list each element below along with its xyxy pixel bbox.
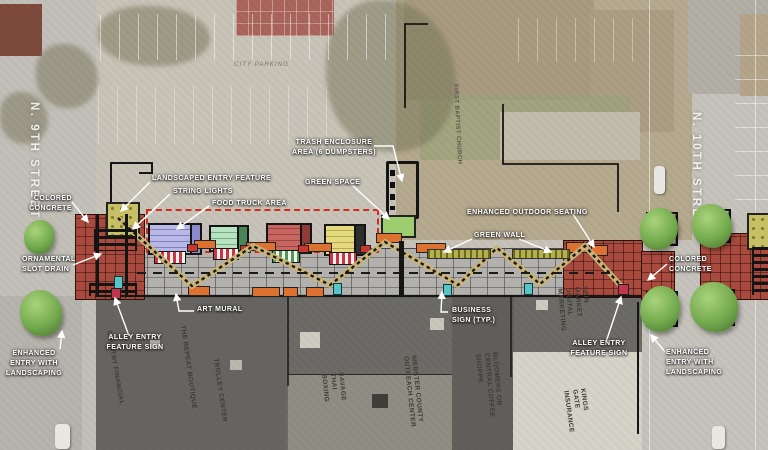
- callout-enhanced-entry-left: ENHANCED ENTRY WITH LANDSCAPING: [2, 349, 66, 378]
- car: [55, 424, 70, 449]
- green-wall-strip: [427, 249, 491, 259]
- business-sign: [524, 283, 533, 295]
- alley-entry-feature-sign-east: [618, 284, 629, 295]
- callout-string-lights: STRING LIGHTS: [173, 187, 233, 197]
- rooftop-unit: [536, 300, 548, 310]
- callout-art-mural: ART MURAL: [197, 305, 243, 315]
- parking-stalls: [518, 18, 640, 62]
- seating-bench: [252, 287, 280, 297]
- callout-business-sign: BUSINESS SIGN (TYP.): [452, 306, 504, 326]
- callout-landscaped-entry-feature: LANDSCAPED ENTRY FEATURE: [152, 174, 271, 184]
- building-name-spin-market: SPIN MARKET DIGITAL MARKETING: [554, 286, 591, 333]
- planter: [240, 245, 251, 253]
- alley-entry-feature-sign-west: [111, 288, 121, 299]
- callout-alley-entry-sign-right: ALLEY ENTRY FEATURE SIGN: [570, 339, 628, 359]
- street-tree: [690, 282, 738, 332]
- callout-green-space: GREEN SPACE: [305, 178, 360, 188]
- callout-colored-concrete-right: COLORED CONCRETE: [669, 255, 719, 275]
- site-plan-canvas: COLORED CONCRETE LANDSCAPED ENTRY FEATUR…: [0, 0, 768, 450]
- street-tree: [692, 204, 732, 248]
- green-wall-strip: [512, 249, 570, 259]
- parking-stalls: [98, 86, 336, 144]
- truck-awning: [154, 251, 186, 264]
- planter: [187, 244, 198, 252]
- callout-enhanced-outdoor-seating: ENHANCED OUTDOOR SEATING: [467, 208, 588, 218]
- trash-enclosure: [386, 161, 419, 219]
- truck-awning: [213, 248, 239, 260]
- seating-bench: [591, 245, 608, 256]
- callout-ornamental-slot-drain: ORNAMENTAL SLOT DRAIN: [22, 255, 84, 275]
- alley-pole: [399, 241, 404, 297]
- planter: [360, 245, 371, 253]
- building-name-savage-thai: SAVAGE THAI BOXING: [319, 372, 349, 420]
- planter: [298, 245, 309, 253]
- business-sign: [443, 284, 452, 296]
- street-tree: [20, 290, 62, 336]
- ornamental-slot-drain-west: [94, 229, 137, 251]
- parking-stalls: [735, 50, 768, 200]
- seating-bench: [283, 287, 298, 297]
- callout-alley-entry-sign-left: ALLEY ENTRY FEATURE SIGN: [106, 333, 164, 353]
- callout-green-wall: GREEN WALL: [474, 231, 525, 241]
- church-driveway: [500, 112, 640, 160]
- rooftop-unit: [230, 360, 242, 370]
- car: [712, 426, 725, 449]
- seating-bench: [188, 286, 210, 296]
- truck-awning: [272, 250, 300, 263]
- sidewalk-left: [82, 296, 96, 450]
- landscaped-entry-feature-east: [747, 213, 768, 250]
- rooftop-unit: [300, 332, 320, 348]
- parking-stalls: [100, 14, 392, 60]
- callout-food-truck-area: FOOD TRUCK AREA: [212, 199, 287, 209]
- building-top-left-red: [0, 4, 42, 56]
- ornamental-slot-drain-east: [752, 247, 768, 295]
- city-parking-label: CITY PARKING: [234, 61, 289, 68]
- callout-enhanced-entry-right: ENHANCED ENTRY WITH LANDSCAPING: [666, 348, 728, 377]
- street-tree: [24, 220, 54, 254]
- seating-bench: [306, 287, 324, 297]
- roof-savage-thai: [288, 374, 452, 450]
- car: [654, 166, 665, 194]
- dumpster-doors: [390, 170, 395, 210]
- rooftop-unit: [430, 318, 444, 330]
- street-tree: [640, 286, 680, 332]
- callout-trash-enclosure: TRASH ENCLOSURE AREA (6 DUMPSTERS): [284, 138, 384, 158]
- truck-awning: [329, 252, 357, 265]
- business-sign: [333, 283, 342, 295]
- rooftop-unit: [372, 394, 388, 408]
- callout-colored-concrete-left: COLORED CONCRETE: [26, 194, 72, 214]
